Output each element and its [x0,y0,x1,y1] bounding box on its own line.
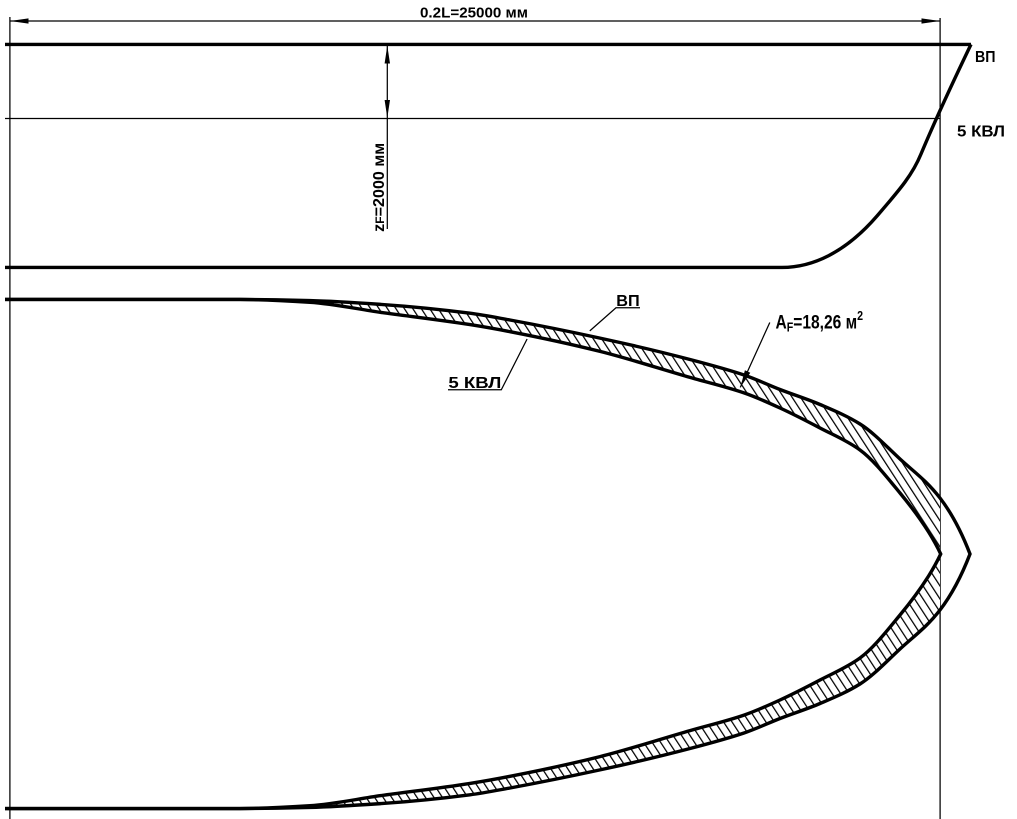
svg-text:zF=2000 мм: zF=2000 мм [371,143,388,232]
svg-text:0.2L=25000 мм: 0.2L=25000 мм [420,6,528,22]
svg-text:5 КВЛ: 5 КВЛ [957,124,1005,141]
svg-text:ВП: ВП [975,49,996,66]
